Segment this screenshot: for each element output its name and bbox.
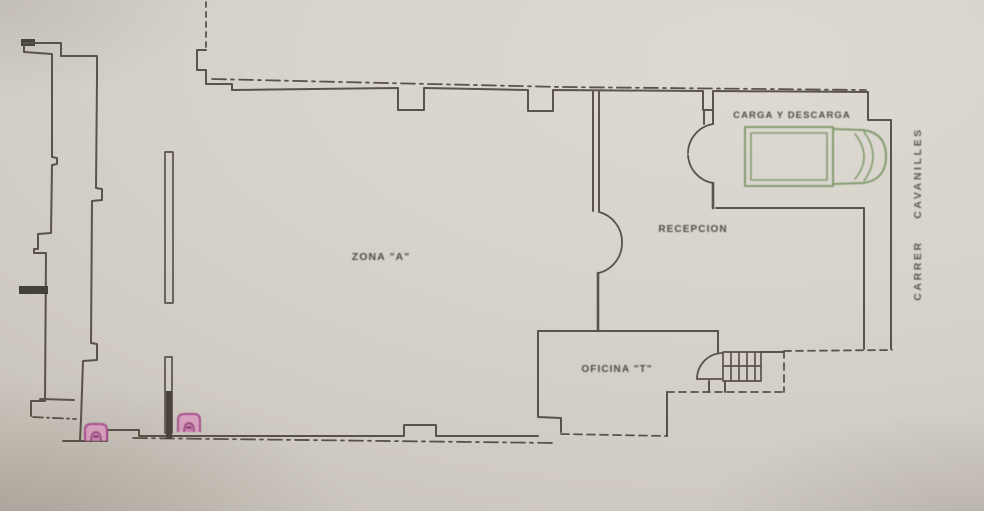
carga-descarga-label: CARGA Y DESCARGA	[733, 110, 851, 121]
recepcion-label: RECEPCION	[658, 224, 727, 235]
bottom-boundary	[33, 417, 556, 443]
arch-marker-icon	[178, 414, 200, 432]
walls-layer	[19, 2, 892, 443]
labels-layer: CARGA Y DESCARGA RECEPCION ZONA "A" OFIC…	[352, 110, 924, 375]
floor-plan-photo: CARGA Y DESCARGA RECEPCION ZONA "A" OFIC…	[0, 0, 984, 511]
left-corridor-wall	[19, 39, 102, 440]
zona-a-label: ZONA "A"	[352, 251, 411, 263]
floor-plan-svg: CARGA Y DESCARGA RECEPCION ZONA "A" OFIC…	[0, 0, 984, 511]
truck-icon	[745, 127, 886, 186]
top-boundary	[197, 2, 868, 111]
thick-wall-mark	[19, 286, 48, 294]
double-swing-door-icon	[688, 124, 713, 183]
thin-partitions	[165, 152, 173, 439]
stairs-icon	[723, 352, 761, 381]
dashed-boundaries	[561, 350, 892, 436]
street-label: CARRER CAVANILLES	[912, 127, 924, 301]
arch-marker-icon	[85, 424, 107, 441]
oficina-label: OFICINA "T"	[581, 364, 652, 375]
door-swing-icon	[697, 353, 722, 379]
reception-wall	[593, 92, 599, 331]
main-top-wall	[232, 88, 868, 111]
reception-double-swing-door-icon	[599, 212, 622, 273]
